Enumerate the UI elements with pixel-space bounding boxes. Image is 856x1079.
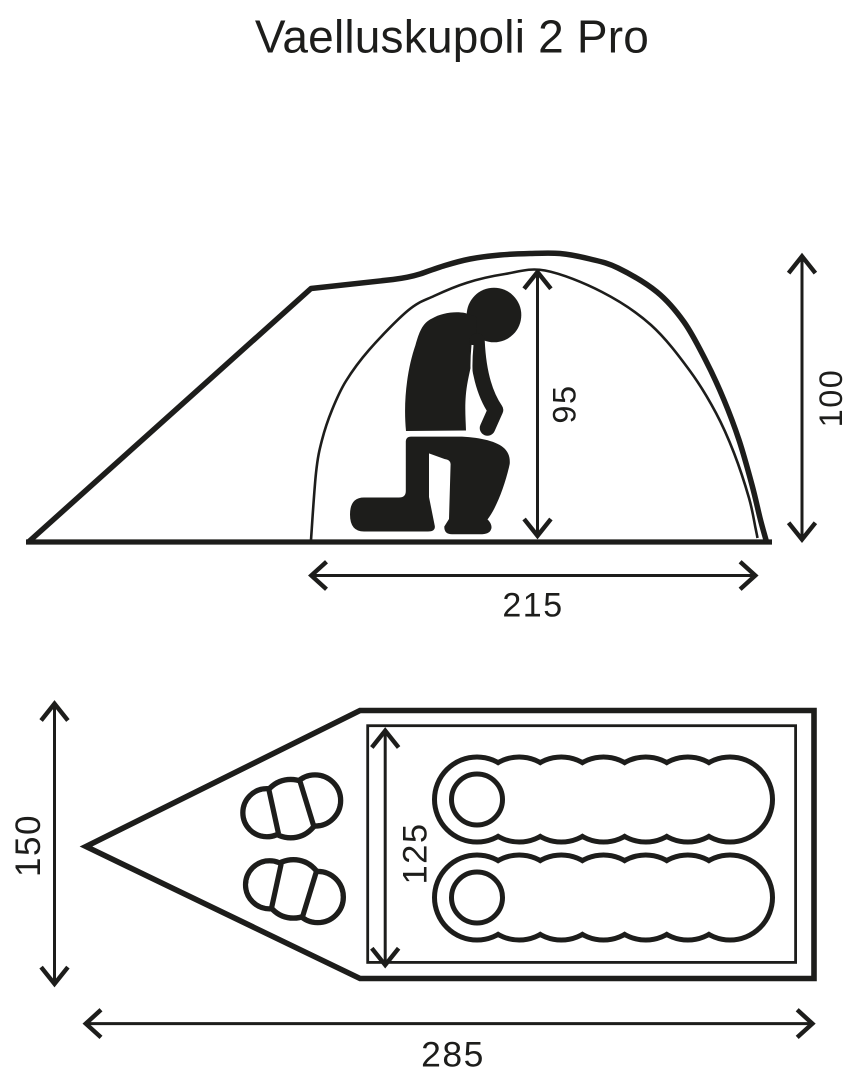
svg-text:150: 150 [9,814,48,877]
svg-text:95: 95 [546,384,582,423]
svg-text:Vaelluskupoli 2 Pro: Vaelluskupoli 2 Pro [255,11,649,63]
svg-text:125: 125 [397,822,435,884]
svg-text:215: 215 [502,587,563,625]
svg-text:285: 285 [421,1035,485,1075]
svg-text:100: 100 [813,369,849,428]
